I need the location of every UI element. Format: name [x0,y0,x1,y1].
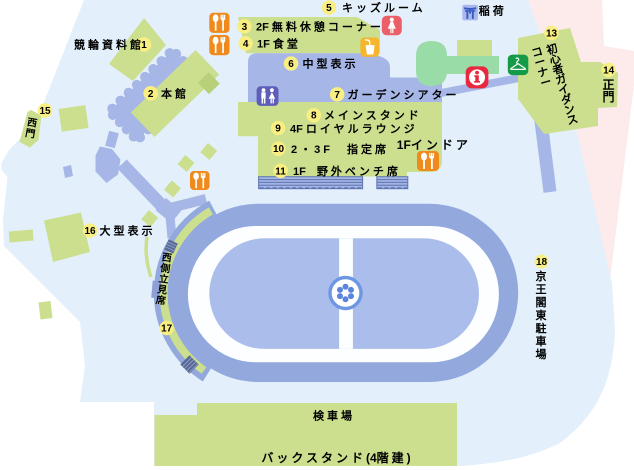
svg-text:16: 16 [84,226,96,237]
svg-text:京王閣東駐車場: 京王閣東駐車場 [536,269,548,361]
svg-text:13: 13 [546,29,558,40]
svg-text:メインスタンド: メインスタンド [324,109,422,122]
svg-text:バックスタンド(4階建): バックスタンド(4階建) [261,450,410,465]
svg-text:中型表示: 中型表示 [303,57,359,71]
svg-text:正門: 正門 [602,78,614,104]
svg-text:2: 2 [148,89,154,100]
svg-text:1F 食堂: 1F 食堂 [257,36,301,50]
svg-text:2・3F 指定席: 2・3F 指定席 [291,142,389,156]
svg-text:3: 3 [242,22,248,33]
svg-text:本館: 本館 [161,86,189,100]
svg-text:7: 7 [334,90,340,101]
svg-text:稲荷: 稲荷 [479,3,507,17]
svg-text:18: 18 [536,257,548,268]
svg-text:14: 14 [603,65,615,76]
svg-text:11: 11 [275,166,286,177]
svg-text:15: 15 [39,106,51,117]
svg-text:1Fインドア: 1Fインドア [397,138,471,152]
svg-text:1F 野外ベンチ席: 1F 野外ベンチ席 [293,164,401,178]
svg-text:ガーデンシアター: ガーデンシアター [348,87,460,101]
svg-text:4: 4 [243,39,249,50]
svg-text:キッズルーム: キッズルーム [342,1,426,15]
svg-text:競輪資料館: 競輪資料館 [74,38,144,52]
svg-text:6: 6 [288,59,294,70]
svg-text:4F ロイヤルラウンジ: 4F ロイヤルラウンジ [290,123,418,136]
svg-text:5: 5 [326,3,332,14]
svg-text:9: 9 [275,124,281,135]
svg-text:10: 10 [273,144,285,155]
svg-text:検車場: 検車場 [313,409,355,423]
svg-text:17: 17 [161,324,173,335]
svg-text:8: 8 [311,111,317,122]
svg-text:2F 無料休憩コーナー: 2F 無料休憩コーナー [256,19,384,33]
svg-text:大型表示: 大型表示 [100,224,156,238]
